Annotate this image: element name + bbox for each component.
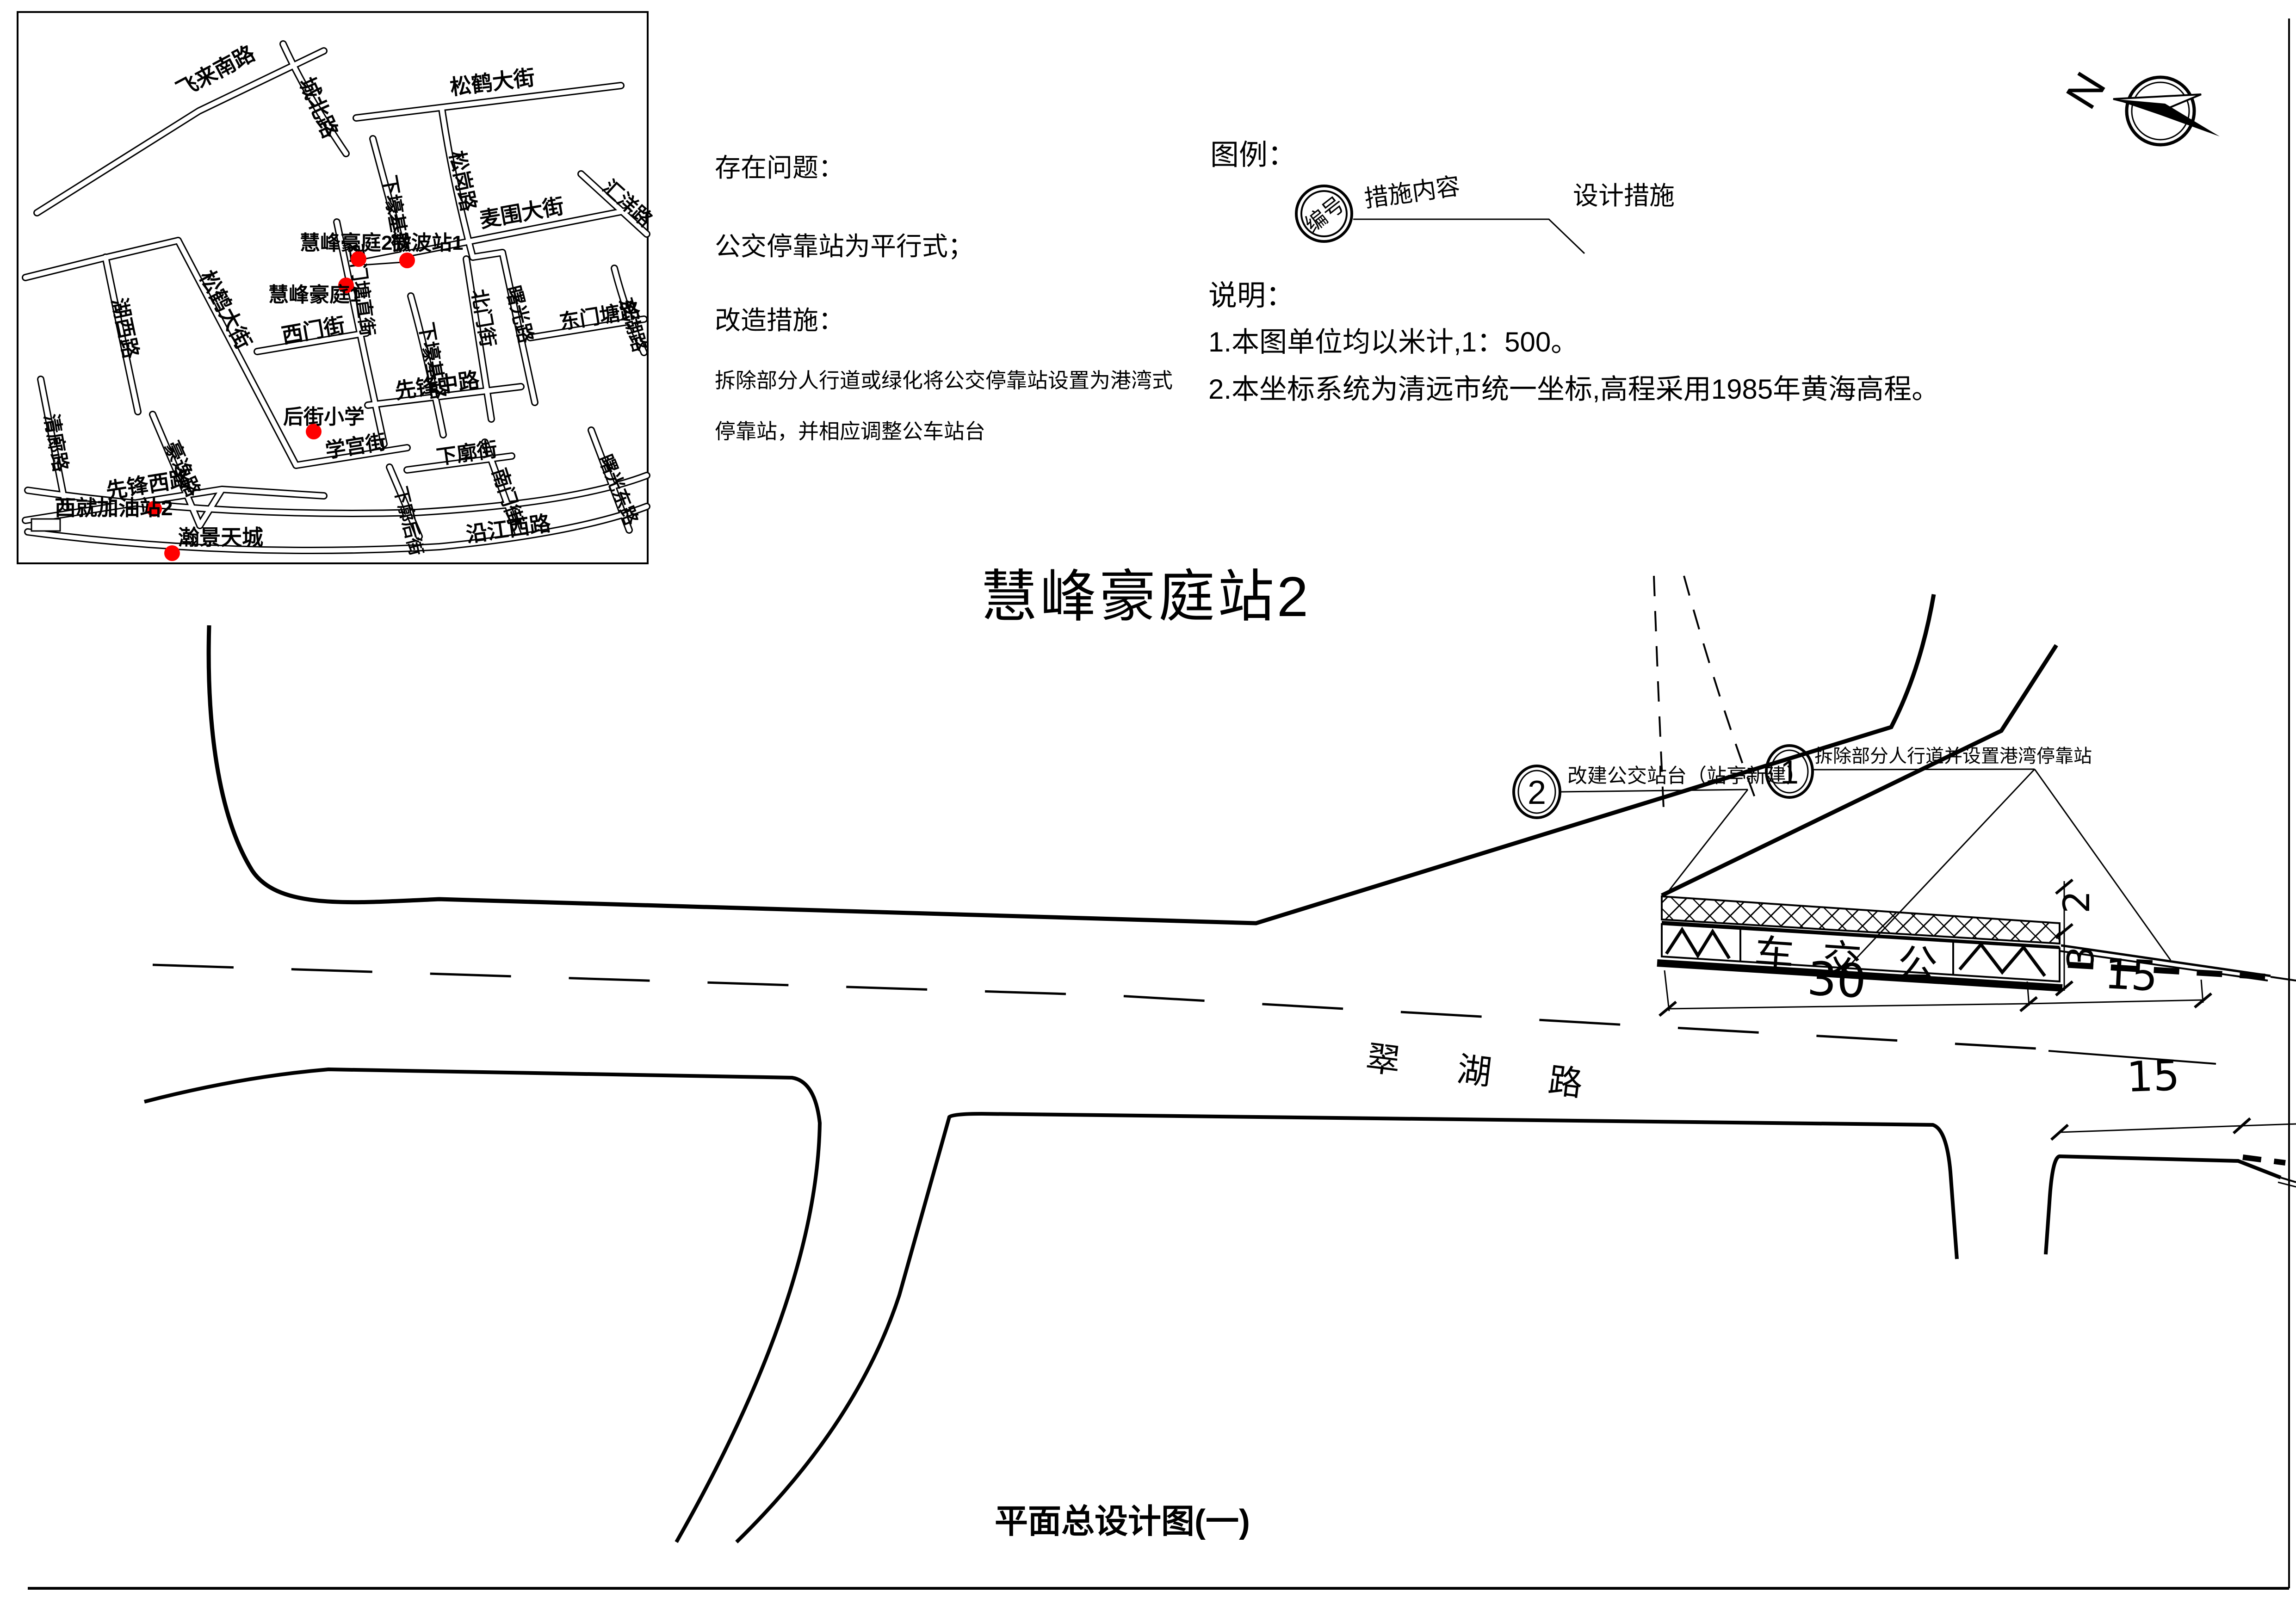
map-poi-label-weibo-station-1: 微波站1 [390, 232, 463, 254]
legend: 图例： 编号 措施内容 设计措施 [1210, 139, 1675, 253]
note-1: 1.本图单位均以米计,1：500。 [1208, 327, 1578, 358]
bay-ramp-tail [2271, 977, 2296, 981]
callout-2-leader [1561, 790, 1748, 792]
south-taper-line-2 [2278, 1182, 2296, 1187]
plan-drawing-canvas: 飞来南路城北路松鹤大街松岗路麦围大街汇洋路下壕基路松鹤大街湖西路清廊路豪逸路先锋… [0, 0, 2296, 1623]
legend-title: 图例： [1210, 139, 1296, 171]
bus-bay-detail: 车 交 公 [1657, 896, 2296, 988]
callout-1-leader [1813, 769, 2035, 770]
dim-line-15-south [2060, 1126, 2242, 1132]
map-poi-label-huifeng-haoting-1: 慧峰豪庭1 [268, 284, 361, 306]
dim-text-15-south: 15 [2126, 1051, 2180, 1102]
north-arrow: N [2056, 64, 2220, 145]
measures-line-2: 停靠站，并相应调整公车站台 [715, 420, 985, 443]
map-building-block [31, 519, 60, 531]
compass-needle-filled-half [2113, 99, 2220, 136]
dim-line-15-south-tail [2242, 1124, 2296, 1126]
problem-measures-block: 存在问题： 公交停靠站为平行式； 改造措施： 拆除部分人行道或绿化将公交停靠站设… [715, 153, 1173, 443]
legend-item-label: 措施内容 [1363, 173, 1462, 212]
south-old-kerb-dashed [2243, 1157, 2285, 1163]
dim-text-3: 3 [2061, 946, 2102, 969]
south-kerb-east [736, 1114, 1957, 1542]
plan-caption: 平面总设计图(一) [995, 1503, 1250, 1540]
problem-heading: 存在问题： [715, 153, 844, 182]
south-kerb-far-east [2046, 1156, 2281, 1254]
main-plan [144, 576, 2296, 1542]
map-poi-label-xijiu-gas-station-2: 西就加油站2 [55, 496, 173, 520]
dim-line-15 [2029, 1000, 2203, 1004]
map-poi-label-hanjing-tiancheng: 瀚景天城 [178, 525, 263, 549]
problem-text: 公交停靠站为平行式； [715, 232, 974, 261]
measures-line-1: 拆除部分人行道或绿化将公交停靠站设置为港湾式 [715, 369, 1173, 392]
callout-1-label: 拆除部分人行道并设置港湾停靠站 [1814, 746, 2092, 766]
map-poi-dot-weibo-station-1 [399, 253, 415, 268]
callout-2-number: 2 [1528, 774, 1546, 811]
legend-leader-line [1353, 219, 1584, 253]
notes-title: 说明： [1208, 280, 1294, 312]
station-title: 慧峰豪庭站2 [981, 565, 1311, 628]
callout-2-pointer [1667, 790, 1748, 893]
map-poi-dot-hanjing-tiancheng [164, 545, 180, 561]
dim-text-30: 30 [1806, 951, 1868, 1008]
map-poi-label-houjie-primary-school: 后街小学 [283, 406, 365, 428]
notes-block: 说明： 1.本图单位均以米计,1：500。 2.本坐标系统为清远市统一坐标,高程… [1208, 280, 1939, 405]
dim-ext-left [1665, 970, 1669, 1011]
note-2: 2.本坐标系统为清远市统一坐标,高程采用1985年黄海高程。 [1208, 374, 1939, 405]
drawing-sheet: 飞来南路城北路松鹤大街松岗路麦围大街汇洋路下壕基路松鹤大街湖西路清廊路豪逸路先锋… [0, 0, 2296, 1623]
dim-text-15: 15 [2104, 950, 2159, 1001]
north-kerb-line [209, 594, 1934, 923]
road-name-cuihu: 翠 湖 路 [1364, 1038, 1609, 1106]
measures-heading: 改造措施： [715, 306, 844, 335]
legend-right-label: 设计措施 [1573, 181, 1675, 210]
callout-1-number: 1 [1780, 754, 1799, 791]
map-poi-label-huifeng-haoting-2: 慧峰豪庭2 [300, 232, 392, 254]
inset-location-map: 飞来南路城北路松鹤大街松岗路麦围大街汇洋路下壕基路松鹤大街湖西路清廊路豪逸路先锋… [18, 12, 657, 563]
north-letter: N [2056, 64, 2115, 117]
dim-text-2: 2 [2056, 890, 2098, 913]
south-kerb-west [144, 1069, 820, 1542]
